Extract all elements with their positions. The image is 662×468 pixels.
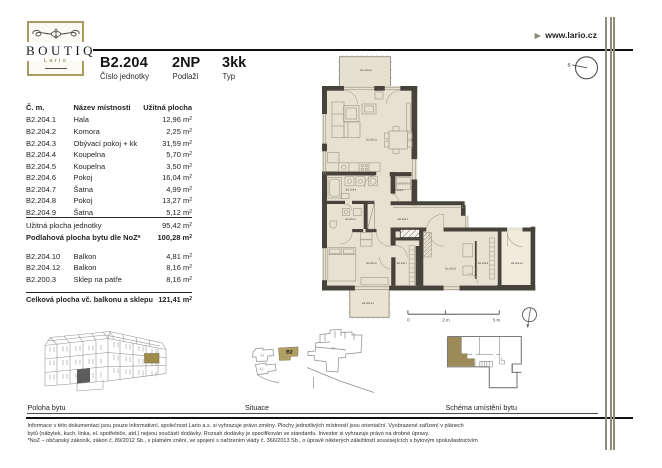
svg-text:A1: A1 <box>260 354 264 358</box>
svg-text:A2: A2 <box>259 367 263 371</box>
svg-text:B2.204.3: B2.204.3 <box>366 139 377 142</box>
svg-text:B2.204.10: B2.204.10 <box>362 302 374 305</box>
svg-text:B2.204.6: B2.204.6 <box>366 262 377 265</box>
svg-text:B2.204.4: B2.204.4 <box>346 189 357 192</box>
svg-text:S: S <box>567 62 570 67</box>
svg-text:B2.204.7: B2.204.7 <box>397 262 408 265</box>
svg-text:B2.204.8: B2.204.8 <box>445 268 456 271</box>
svg-text:B2.204.9: B2.204.9 <box>478 262 489 265</box>
svg-text:B2.204.12: B2.204.12 <box>511 262 523 265</box>
svg-text:B2.204.5: B2.204.5 <box>345 218 356 221</box>
svg-text:B2.204.1: B2.204.1 <box>398 218 409 221</box>
svg-text:B2: B2 <box>286 350 293 356</box>
svg-text:B2.204.2: B2.204.2 <box>393 189 404 192</box>
svg-text:B1: B1 <box>331 347 335 351</box>
svg-text:B2.204.11: B2.204.11 <box>360 69 372 72</box>
